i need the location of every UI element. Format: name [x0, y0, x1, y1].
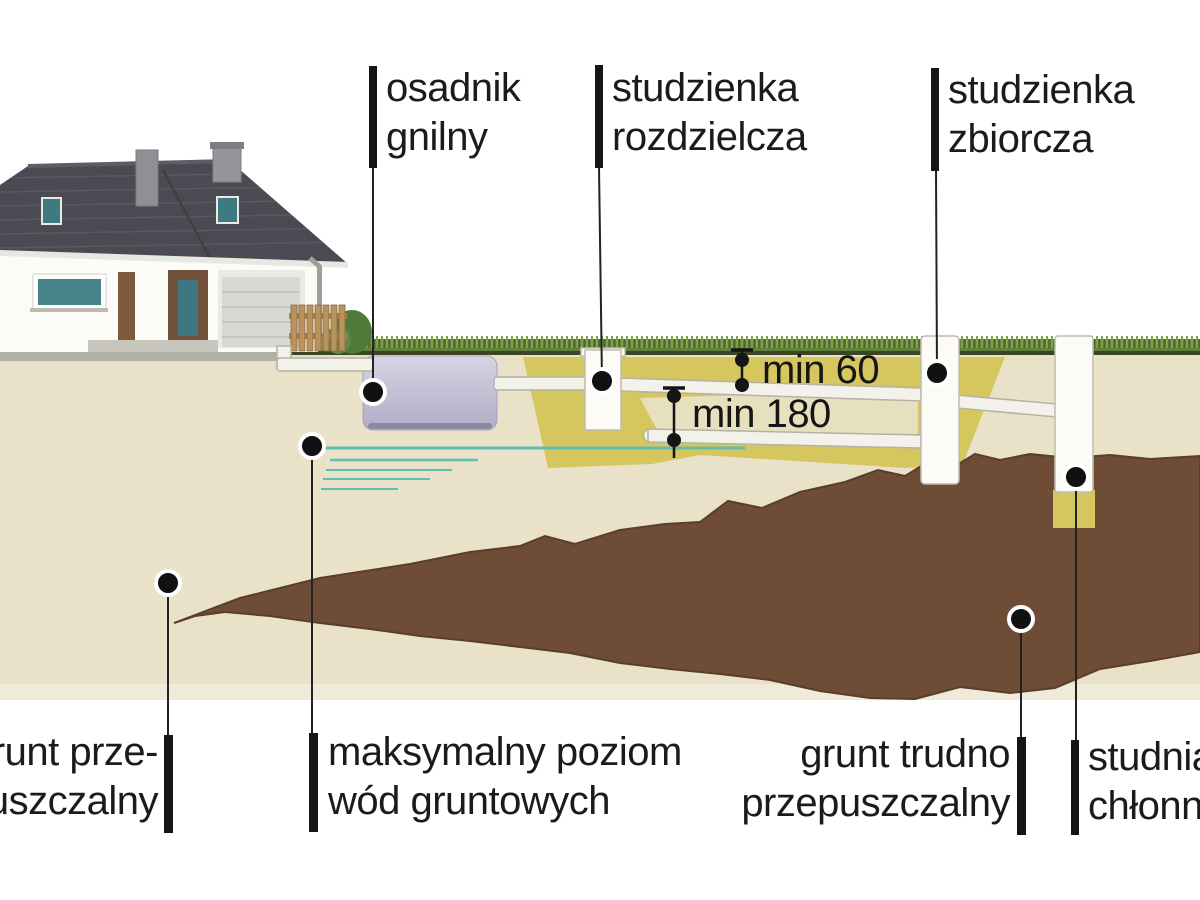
- window-glass: [38, 279, 101, 305]
- fence-pickets: [291, 305, 345, 351]
- label-impermeable-soil-line1: grunt trudno: [710, 730, 1010, 779]
- tank-to-distribution-pipe: [494, 377, 590, 390]
- dot-permeable-soil: [156, 571, 180, 595]
- dot-absorption-well: [1064, 465, 1088, 489]
- label-distribution-well-line1: studzienka: [612, 64, 807, 113]
- label-distribution-well: studzienka rozdzielcza: [612, 64, 807, 162]
- garden-fence: [289, 305, 372, 354]
- entry-step: [88, 340, 218, 352]
- leader-collection-well: [936, 170, 937, 373]
- dot-septic-tank: [361, 380, 385, 404]
- label-permeable-soil: grunt prze- puszczalny: [0, 728, 158, 826]
- side-window: [118, 272, 135, 340]
- dot-collection-well: [925, 361, 949, 385]
- dim-180-dot-top: [668, 390, 681, 403]
- bar-impermeable-soil: [1017, 737, 1026, 835]
- bar-permeable-soil: [164, 735, 173, 833]
- dim-60-dot-top: [736, 354, 749, 367]
- collection-well-shaft: [921, 336, 959, 484]
- label-permeable-soil-line1: grunt prze-: [0, 728, 158, 777]
- bar-distribution-well: [595, 65, 603, 168]
- label-septic-tank-line1: osadnik: [386, 64, 520, 113]
- dot-distribution-well: [590, 369, 614, 393]
- bar-groundwater: [309, 733, 318, 832]
- skylight-left: [42, 198, 61, 224]
- dim-60-dot-bottom: [736, 379, 749, 392]
- label-groundwater-line1: maksymalny poziom: [328, 728, 682, 777]
- skylight-right: [217, 197, 238, 223]
- bar-collection-well: [931, 68, 939, 171]
- dim-180-dot-bottom: [668, 434, 681, 447]
- door-glass: [178, 280, 198, 336]
- chimney-small: [136, 150, 158, 206]
- label-absorption-well-line1: studnia: [1088, 733, 1200, 782]
- dot-impermeable-soil: [1009, 607, 1033, 631]
- label-groundwater: maksymalny poziom wód gruntowych: [328, 728, 682, 826]
- label-permeable-soil-line2: puszczalny: [0, 777, 158, 826]
- bar-septic-tank: [369, 66, 377, 168]
- label-collection-well: studzienka zbiorcza: [948, 66, 1134, 164]
- chimney-cap: [210, 142, 244, 149]
- septic-tank-base: [368, 423, 492, 429]
- label-absorption-well-line2: chłonna: [1088, 782, 1200, 831]
- label-groundwater-line2: wód gruntowych: [328, 777, 682, 826]
- septic-system-diagram: osadnik gnilny studzienka rozdzielcza st…: [0, 0, 1200, 900]
- window-sill: [30, 308, 108, 312]
- absorption-gravel: [1053, 490, 1095, 528]
- label-impermeable-soil: grunt trudno przepuszczalny: [710, 730, 1010, 828]
- dot-groundwater: [300, 434, 324, 458]
- label-distribution-well-line2: rozdzielcza: [612, 113, 807, 162]
- bar-absorption-well: [1071, 740, 1079, 835]
- label-impermeable-soil-line2: przepuszczalny: [710, 779, 1010, 828]
- label-absorption-well: studnia chłonna: [1088, 733, 1200, 831]
- label-septic-tank: osadnik gnilny: [386, 64, 520, 162]
- label-min-180: min 180: [692, 393, 831, 435]
- label-septic-tank-line2: gnilny: [386, 113, 520, 162]
- label-collection-well-line2: zbiorcza: [948, 115, 1134, 164]
- chimney: [213, 146, 241, 182]
- label-min-60: min 60: [762, 349, 879, 391]
- label-collection-well-line1: studzienka: [948, 66, 1134, 115]
- house-to-tank-pipe: [277, 358, 373, 371]
